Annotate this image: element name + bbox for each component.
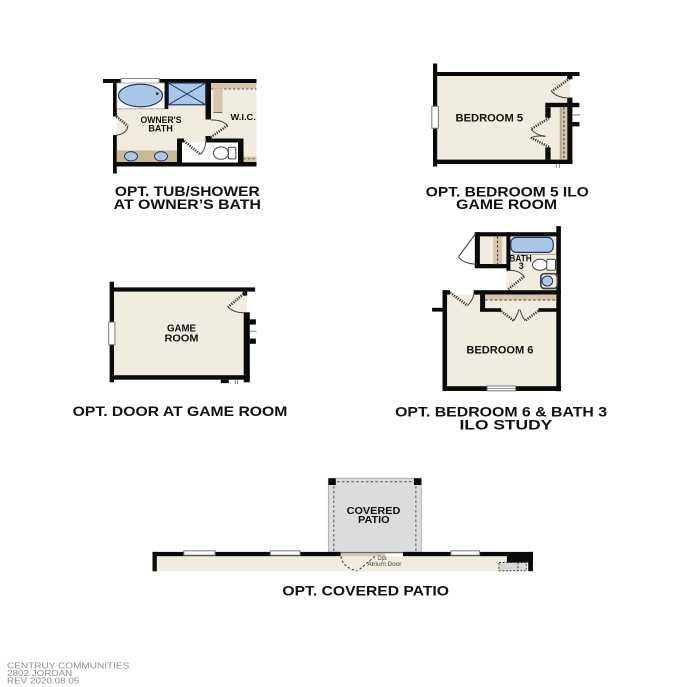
svg-text:REV 2020.08.05: REV 2020.08.05 (7, 677, 80, 686)
svg-text:GAME ROOM: GAME ROOM (456, 197, 557, 212)
svg-text:OPT. COVERED PATIO: OPT. COVERED PATIO (282, 584, 449, 599)
svg-text:BEDROOM 5: BEDROOM 5 (456, 113, 524, 125)
svg-text:BEDROOM 6: BEDROOM 6 (466, 345, 533, 357)
svg-text:ROOM: ROOM (165, 334, 199, 345)
svg-text:AT OWNER’S BATH: AT OWNER’S BATH (114, 197, 261, 212)
svg-text:PATIO: PATIO (358, 514, 390, 526)
svg-text:BATH: BATH (148, 123, 173, 133)
svg-text:W.I.C.: W.I.C. (231, 112, 256, 122)
svg-text:OPT. DOOR AT GAME ROOM: OPT. DOOR AT GAME ROOM (73, 404, 288, 419)
svg-text:Atrium Door: Atrium Door (367, 561, 402, 568)
svg-text:ILO STUDY: ILO STUDY (460, 418, 553, 433)
svg-text:3: 3 (519, 261, 524, 271)
